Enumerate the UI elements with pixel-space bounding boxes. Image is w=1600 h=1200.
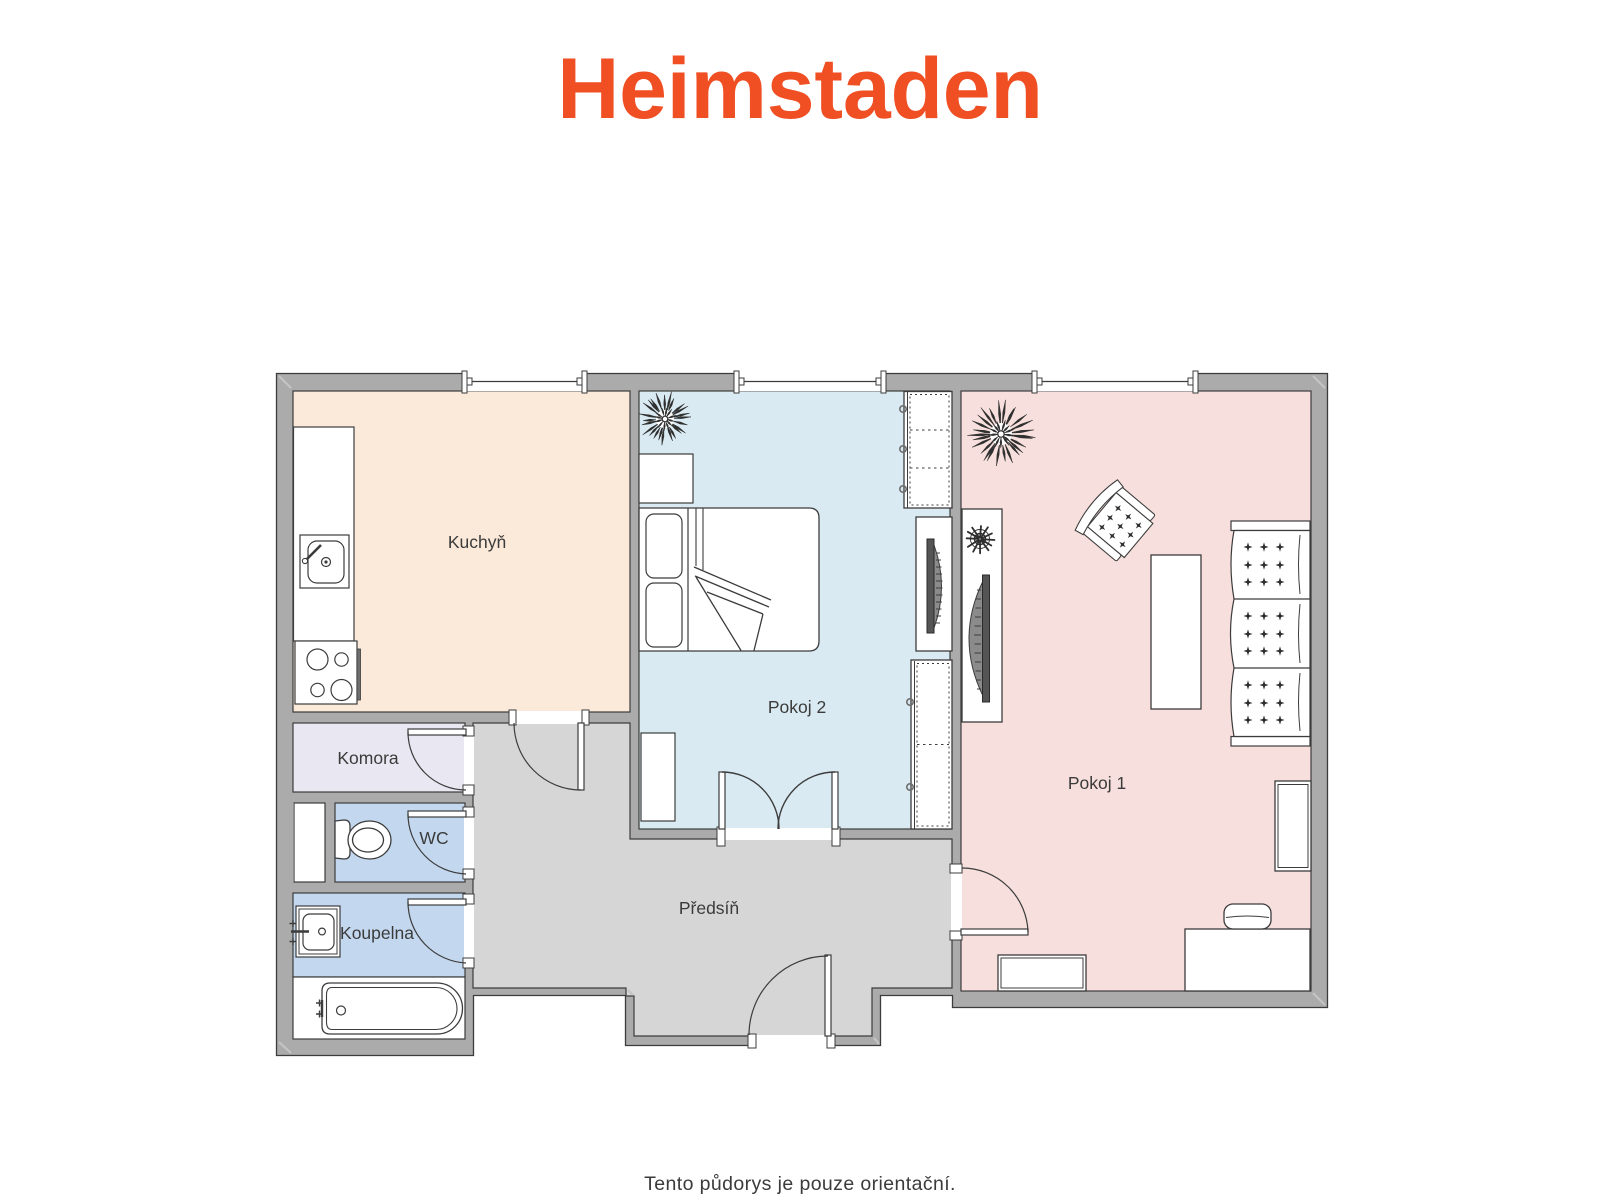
svg-text:Pokoj 2: Pokoj 2 <box>768 697 826 717</box>
svg-text:Koupelna: Koupelna <box>340 923 414 943</box>
svg-text:Heimstaden: Heimstaden <box>557 41 1043 137</box>
svg-text:Komora: Komora <box>337 748 399 768</box>
svg-text:Pokoj 1: Pokoj 1 <box>1068 773 1126 793</box>
svg-text:WC: WC <box>419 828 448 848</box>
svg-text:Předsíň: Předsíň <box>679 898 739 918</box>
svg-text:Tento půdorys je pouze orienta: Tento půdorys je pouze orientační. <box>644 1173 956 1195</box>
svg-text:Kuchyň: Kuchyň <box>448 532 506 552</box>
